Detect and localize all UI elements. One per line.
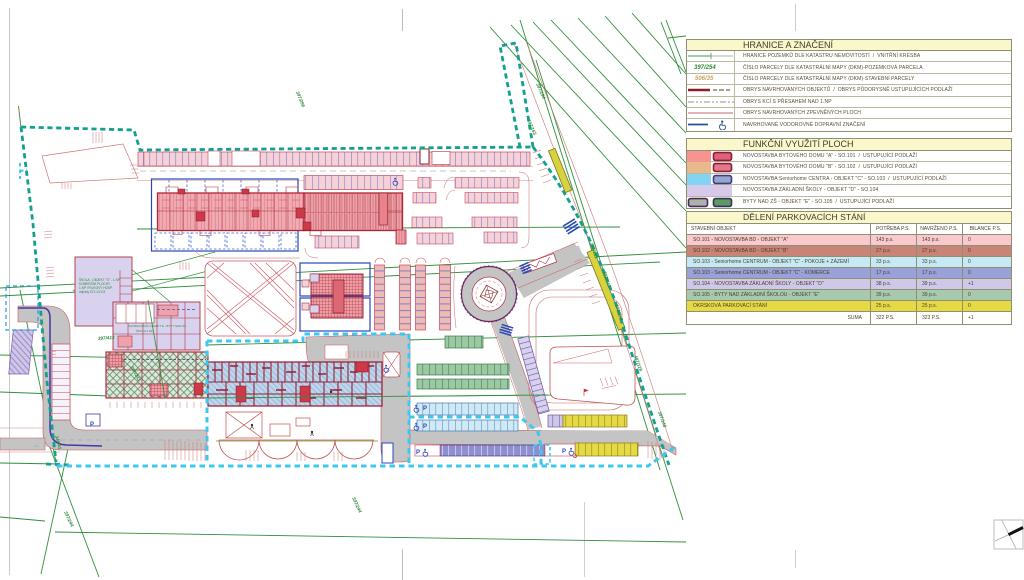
svg-text:P: P xyxy=(416,450,420,456)
svg-text:397/148: 397/148 xyxy=(657,411,668,429)
svg-text:397/244: 397/244 xyxy=(351,496,363,514)
svg-text:397/244: 397/244 xyxy=(63,510,75,528)
svg-text:P: P xyxy=(423,406,427,412)
svg-text:P: P xyxy=(562,449,566,455)
svg-text:objekty GIT-1/2.03: objekty GIT-1/2.03 xyxy=(79,290,105,294)
svg-text:ŠKOLA 1.NP: ŠKOLA 1.NP xyxy=(136,328,153,333)
svg-text:NAVRHOVANÁ OBJEKT E - BYTY NAD: NAVRHOVANÁ OBJEKT E - BYTY NAD ZŠ xyxy=(128,323,186,328)
svg-text:397/256: 397/256 xyxy=(295,91,306,109)
svg-text:P: P xyxy=(423,424,427,430)
svg-text:P: P xyxy=(90,422,94,428)
svg-text:397/413: 397/413 xyxy=(98,335,115,341)
